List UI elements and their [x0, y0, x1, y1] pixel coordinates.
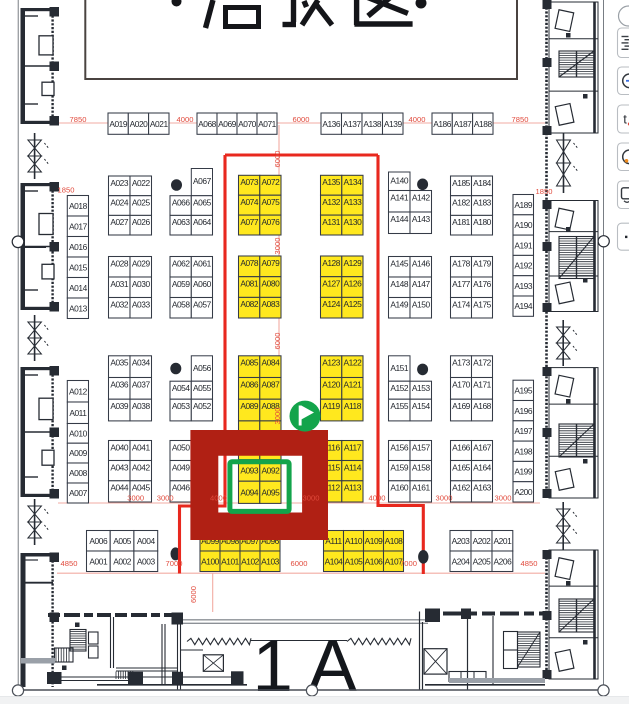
svg-text:A094: A094 — [240, 487, 259, 497]
svg-text:A030: A030 — [132, 279, 151, 289]
svg-text:A052: A052 — [193, 401, 212, 411]
svg-text:A194: A194 — [514, 301, 533, 311]
svg-text:A069: A069 — [218, 119, 237, 129]
svg-text:A141: A141 — [390, 192, 409, 202]
svg-text:4850: 4850 — [61, 559, 78, 568]
svg-text:A046: A046 — [172, 483, 191, 493]
svg-text:A005: A005 — [113, 536, 132, 546]
svg-text:A031: A031 — [110, 279, 129, 289]
svg-text:A006: A006 — [89, 536, 108, 546]
svg-text:A105: A105 — [345, 556, 364, 566]
svg-text:A081: A081 — [240, 279, 259, 289]
svg-text:A176: A176 — [473, 279, 492, 289]
svg-text:A034: A034 — [132, 358, 151, 368]
svg-text:A012: A012 — [69, 386, 88, 396]
svg-text:6000: 6000 — [291, 559, 308, 568]
svg-text:A158: A158 — [412, 462, 431, 472]
svg-text:A063: A063 — [172, 217, 191, 227]
svg-text:A137: A137 — [343, 119, 362, 129]
svg-text:A067: A067 — [193, 176, 212, 186]
svg-text:A120: A120 — [322, 379, 341, 389]
svg-text:A148: A148 — [390, 279, 409, 289]
svg-text:A011: A011 — [69, 408, 87, 418]
svg-text:A092: A092 — [262, 466, 281, 476]
svg-text:A106: A106 — [365, 556, 384, 566]
svg-text:A053: A053 — [172, 401, 191, 411]
svg-text:A170: A170 — [452, 379, 471, 389]
svg-text:3000: 3000 — [495, 494, 512, 503]
svg-text:A095: A095 — [262, 487, 281, 497]
svg-text:A126: A126 — [344, 279, 363, 289]
svg-text:A065: A065 — [193, 198, 212, 208]
svg-text:A134: A134 — [344, 177, 363, 187]
svg-text:A186: A186 — [433, 119, 452, 129]
svg-text:3000: 3000 — [127, 494, 144, 503]
svg-text:A018: A018 — [69, 201, 88, 211]
svg-text:A054: A054 — [172, 383, 191, 393]
svg-text:A066: A066 — [172, 198, 191, 208]
svg-text:A166: A166 — [452, 442, 471, 452]
svg-text:t: t — [623, 112, 627, 127]
svg-text:A001: A001 — [89, 556, 108, 566]
svg-text:A003: A003 — [137, 556, 156, 566]
svg-text:A201: A201 — [494, 536, 513, 546]
svg-text:A162: A162 — [452, 483, 471, 493]
svg-text:A058: A058 — [172, 299, 191, 309]
svg-text:A109: A109 — [365, 536, 384, 546]
svg-text:7850: 7850 — [512, 115, 529, 124]
svg-text:4000: 4000 — [210, 494, 227, 503]
svg-text:A156: A156 — [390, 442, 409, 452]
svg-text:A129: A129 — [344, 258, 363, 268]
svg-text:A038: A038 — [132, 401, 151, 411]
svg-text:A173: A173 — [452, 358, 471, 368]
svg-text:A024: A024 — [110, 198, 129, 208]
svg-text:A086: A086 — [240, 379, 259, 389]
svg-text:A113: A113 — [344, 483, 362, 493]
svg-text:A064: A064 — [193, 217, 212, 227]
svg-text:A061: A061 — [193, 258, 212, 268]
svg-text:A085: A085 — [240, 358, 259, 368]
svg-text:A202: A202 — [473, 536, 492, 546]
svg-text:A171: A171 — [473, 379, 492, 389]
svg-text:A203: A203 — [452, 536, 471, 546]
svg-text:A074: A074 — [240, 197, 259, 207]
svg-text:A125: A125 — [344, 299, 363, 309]
svg-text:A041: A041 — [132, 442, 151, 452]
svg-text:A184: A184 — [473, 178, 492, 188]
svg-text:A128: A128 — [322, 258, 341, 268]
svg-text:A196: A196 — [514, 406, 533, 416]
svg-text:A182: A182 — [452, 198, 471, 208]
svg-text:7000: 7000 — [400, 559, 417, 568]
svg-text:A192: A192 — [514, 261, 533, 271]
svg-text:A071: A071 — [258, 119, 277, 129]
svg-text:A077: A077 — [240, 217, 259, 227]
svg-text:A110: A110 — [345, 536, 363, 546]
svg-text:A152: A152 — [390, 383, 409, 393]
svg-text:A101: A101 — [221, 556, 240, 566]
svg-text:A103: A103 — [261, 556, 280, 566]
svg-text:A143: A143 — [412, 214, 431, 224]
svg-text:A140: A140 — [390, 176, 409, 186]
svg-text:A068: A068 — [198, 119, 217, 129]
svg-text:A149: A149 — [390, 299, 409, 309]
svg-text:A002: A002 — [113, 556, 132, 566]
svg-text:A130: A130 — [344, 217, 363, 227]
svg-text:A195: A195 — [514, 386, 533, 396]
svg-text:A022: A022 — [132, 178, 151, 188]
svg-text:A199: A199 — [514, 467, 533, 477]
svg-text:A114: A114 — [344, 462, 362, 472]
svg-text:3000: 3000 — [303, 494, 320, 503]
svg-text:A167: A167 — [473, 442, 492, 452]
svg-text:A181: A181 — [452, 217, 471, 227]
svg-text:A021: A021 — [150, 119, 169, 129]
svg-text:A037: A037 — [132, 379, 151, 389]
svg-text:A020: A020 — [130, 119, 149, 129]
svg-text:A198: A198 — [514, 446, 533, 456]
svg-text:A187: A187 — [454, 119, 473, 129]
svg-text:A029: A029 — [132, 258, 151, 268]
svg-text:A147: A147 — [412, 279, 431, 289]
svg-text:A087: A087 — [262, 379, 281, 389]
svg-text:3000: 3000 — [273, 238, 282, 255]
svg-text:3000: 3000 — [436, 494, 453, 503]
svg-text:6000: 6000 — [273, 333, 282, 350]
svg-text:A189: A189 — [514, 200, 533, 210]
svg-text:1850: 1850 — [536, 187, 553, 196]
svg-text:A165: A165 — [452, 462, 471, 472]
svg-text:A131: A131 — [322, 217, 341, 227]
svg-text:A164: A164 — [473, 462, 492, 472]
svg-text:A044: A044 — [110, 483, 129, 493]
svg-text:A117: A117 — [344, 442, 362, 452]
svg-text:A132: A132 — [322, 197, 341, 207]
svg-text:A102: A102 — [241, 556, 260, 566]
svg-text:A045: A045 — [132, 483, 151, 493]
svg-text:A023: A023 — [110, 178, 129, 188]
svg-text:A093: A093 — [240, 466, 259, 476]
svg-text:A200: A200 — [514, 487, 533, 497]
svg-text:A153: A153 — [412, 383, 431, 393]
svg-text:A204: A204 — [452, 556, 471, 566]
svg-text:A160: A160 — [390, 483, 409, 493]
svg-text:A104: A104 — [325, 556, 344, 566]
svg-text:A178: A178 — [452, 258, 471, 268]
svg-text:A197: A197 — [514, 426, 533, 436]
svg-text:A036: A036 — [110, 379, 129, 389]
svg-text:A010: A010 — [69, 429, 88, 439]
svg-text:A144: A144 — [390, 214, 409, 224]
svg-text:A119: A119 — [323, 401, 341, 411]
svg-text:A027: A027 — [110, 217, 129, 227]
svg-text:A180: A180 — [473, 217, 492, 227]
svg-text:A076: A076 — [262, 217, 281, 227]
svg-text:A172: A172 — [473, 358, 492, 368]
svg-text:A033: A033 — [132, 299, 151, 309]
svg-text:A078: A078 — [240, 258, 259, 268]
svg-text:A135: A135 — [322, 177, 341, 187]
svg-text:A146: A146 — [412, 258, 431, 268]
svg-text:A108: A108 — [385, 536, 404, 546]
svg-text:A163: A163 — [473, 483, 492, 493]
svg-text:A193: A193 — [514, 281, 533, 291]
svg-text:A013: A013 — [69, 303, 88, 313]
svg-text:A042: A042 — [132, 462, 151, 472]
svg-text:A016: A016 — [69, 242, 88, 252]
svg-text:A060: A060 — [193, 279, 212, 289]
svg-text:A079: A079 — [262, 258, 281, 268]
svg-text:A139: A139 — [384, 119, 403, 129]
svg-text:A100: A100 — [201, 556, 220, 566]
svg-text:A118: A118 — [344, 401, 362, 411]
svg-text:A191: A191 — [514, 240, 533, 250]
svg-text:A009: A009 — [69, 448, 88, 458]
svg-text:A157: A157 — [412, 442, 431, 452]
svg-text:A080: A080 — [262, 279, 281, 289]
svg-text:A059: A059 — [172, 279, 191, 289]
svg-text:A123: A123 — [322, 358, 341, 368]
svg-text:A055: A055 — [193, 383, 212, 393]
svg-text:A136: A136 — [322, 119, 341, 129]
svg-text:A161: A161 — [412, 483, 431, 493]
svg-text:A206: A206 — [494, 556, 513, 566]
svg-text:A040: A040 — [110, 442, 129, 452]
svg-text:A089: A089 — [240, 401, 259, 411]
svg-text:A190: A190 — [514, 220, 533, 230]
svg-text:A072: A072 — [262, 177, 281, 187]
svg-text:A155: A155 — [390, 401, 409, 411]
svg-text:6000: 6000 — [189, 586, 198, 603]
svg-text:A075: A075 — [262, 197, 281, 207]
svg-text:3000: 3000 — [273, 408, 282, 425]
svg-text:A057: A057 — [193, 299, 212, 309]
svg-text:A050: A050 — [172, 442, 191, 452]
svg-text:A039: A039 — [110, 401, 129, 411]
svg-text:A084: A084 — [262, 358, 281, 368]
svg-text:A049: A049 — [172, 462, 191, 472]
svg-text:A177: A177 — [452, 279, 471, 289]
svg-text:A121: A121 — [344, 379, 363, 389]
svg-text:A122: A122 — [344, 358, 363, 368]
svg-text:A032: A032 — [110, 299, 129, 309]
svg-text:6000: 6000 — [273, 151, 282, 168]
svg-text:3000: 3000 — [157, 494, 174, 503]
svg-text:A035: A035 — [110, 358, 129, 368]
svg-text:A056: A056 — [193, 363, 212, 373]
svg-text:A142: A142 — [412, 192, 431, 202]
svg-text:A015: A015 — [69, 262, 88, 272]
svg-text:1: 1 — [252, 626, 293, 704]
svg-text:1850: 1850 — [58, 186, 75, 195]
svg-text:A133: A133 — [344, 197, 363, 207]
svg-text:A205: A205 — [473, 556, 492, 566]
svg-text:A185: A185 — [452, 178, 471, 188]
svg-text:A150: A150 — [412, 299, 431, 309]
svg-text:A004: A004 — [137, 536, 156, 546]
svg-text:4000: 4000 — [177, 115, 194, 124]
svg-text:7850: 7850 — [70, 115, 87, 124]
svg-text:A017: A017 — [69, 221, 88, 231]
svg-text:A026: A026 — [132, 217, 151, 227]
svg-text:A151: A151 — [390, 363, 409, 373]
svg-text:4000: 4000 — [369, 494, 386, 503]
svg-text:A145: A145 — [390, 258, 409, 268]
svg-text:A083: A083 — [262, 299, 281, 309]
svg-text:A127: A127 — [322, 279, 341, 289]
svg-text:A025: A025 — [132, 198, 151, 208]
svg-text:A043: A043 — [110, 462, 129, 472]
svg-text:7000: 7000 — [166, 559, 183, 568]
svg-text:A008: A008 — [69, 468, 88, 478]
svg-text:A138: A138 — [363, 119, 382, 129]
svg-text:A014: A014 — [69, 283, 88, 293]
svg-text:A183: A183 — [473, 198, 492, 208]
svg-text:A070: A070 — [238, 119, 257, 129]
svg-text:A179: A179 — [473, 258, 492, 268]
svg-text:A062: A062 — [172, 258, 191, 268]
svg-text:A154: A154 — [412, 401, 431, 411]
svg-text:A007: A007 — [69, 488, 88, 498]
svg-text:6000: 6000 — [293, 115, 310, 124]
svg-text:A159: A159 — [390, 462, 409, 472]
svg-text:A174: A174 — [452, 299, 471, 309]
svg-text:A188: A188 — [474, 119, 493, 129]
svg-text:A175: A175 — [473, 299, 492, 309]
svg-text:A124: A124 — [322, 299, 341, 309]
svg-text:A169: A169 — [452, 401, 471, 411]
svg-text:A073: A073 — [240, 177, 259, 187]
svg-text:A028: A028 — [110, 258, 129, 268]
svg-text:A019: A019 — [109, 119, 128, 129]
svg-text:A168: A168 — [473, 401, 492, 411]
svg-text:4000: 4000 — [409, 115, 426, 124]
svg-text:A082: A082 — [240, 299, 259, 309]
svg-text:4850: 4850 — [521, 559, 538, 568]
